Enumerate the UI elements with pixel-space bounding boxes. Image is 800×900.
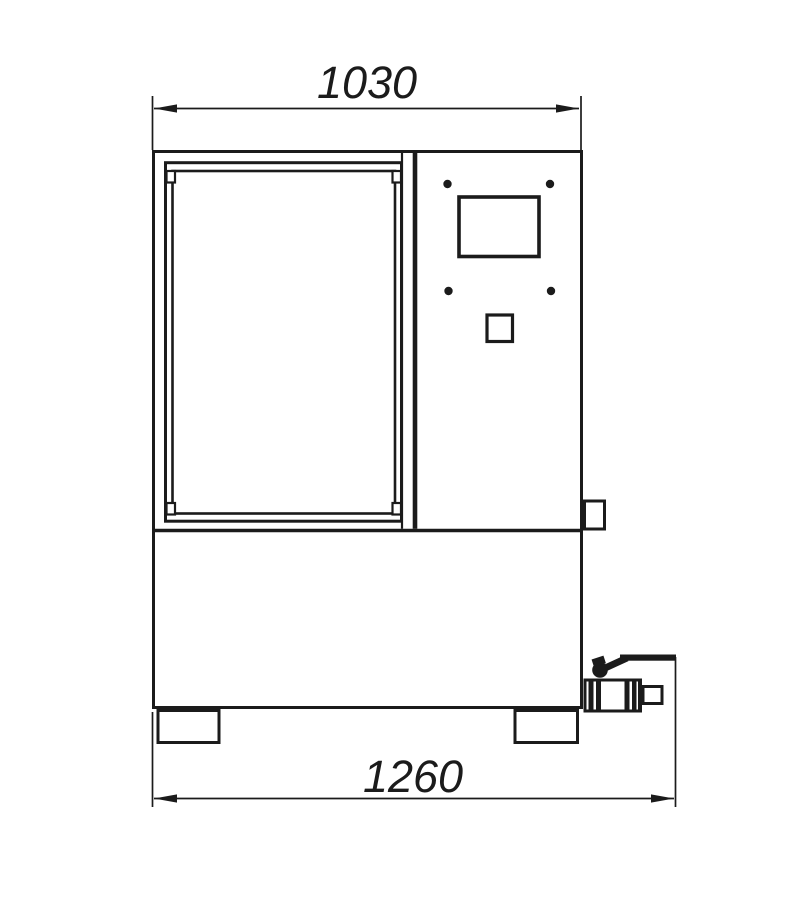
door-hinge-notch xyxy=(393,503,402,515)
door-hinge-notch xyxy=(167,503,176,515)
screw-dot xyxy=(547,287,555,295)
machine-body xyxy=(152,152,676,743)
valve-flange-rib xyxy=(632,680,637,711)
panel-button xyxy=(487,315,513,342)
dimension-label-top: 1030 xyxy=(317,57,417,108)
screw-dot xyxy=(443,180,451,188)
valve-outlet xyxy=(643,687,662,704)
foot-left xyxy=(158,711,219,743)
screw-dot xyxy=(444,287,452,295)
side-connector xyxy=(585,501,605,529)
screw-dot xyxy=(546,180,554,188)
arrowhead-right xyxy=(651,794,674,802)
arrowhead-right xyxy=(556,104,579,112)
door xyxy=(166,163,402,522)
valve-handle-bar xyxy=(620,655,676,661)
valve-flange-rib xyxy=(596,679,601,713)
technical-drawing-canvas: 1030 xyxy=(0,0,800,900)
valve-flange-rib xyxy=(638,682,642,710)
foot-right xyxy=(515,711,578,743)
dimension-top: 1030 xyxy=(153,57,582,150)
drain-valve xyxy=(585,655,676,713)
arrowhead-left xyxy=(154,794,177,802)
door-window xyxy=(173,171,396,514)
arrowhead-left xyxy=(154,104,177,112)
valve-flange-rib xyxy=(589,679,594,713)
door-hinge-notch xyxy=(167,171,176,183)
dimension-label-bottom: 1260 xyxy=(363,751,463,802)
door-hinge-notch xyxy=(393,171,402,183)
valve-flange-rib xyxy=(625,679,630,712)
display-screen xyxy=(459,197,539,257)
